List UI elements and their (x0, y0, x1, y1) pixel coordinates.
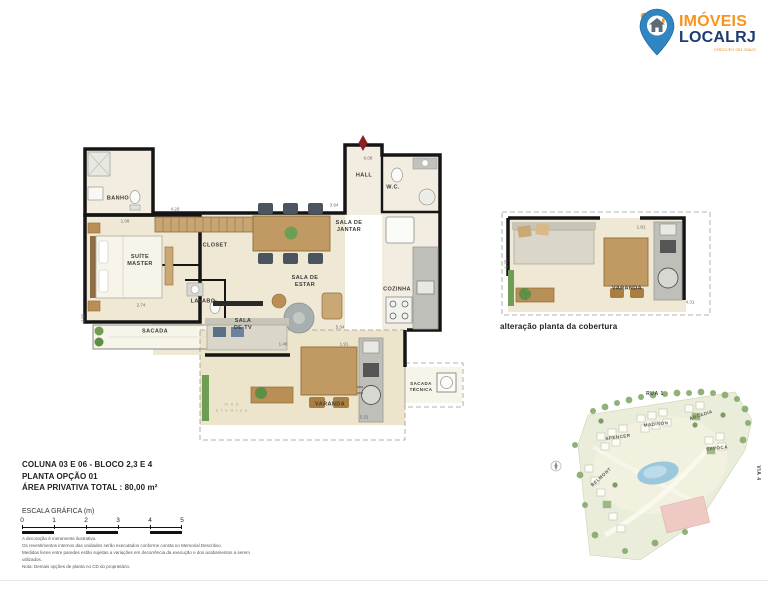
cobertura-drawing (500, 210, 712, 318)
room-label-sala-estar: SALA DEESTAR (292, 275, 319, 289)
disclaimer-line: A decoração é meramente ilustrativa. (22, 536, 262, 543)
scale-tick: 1 (52, 517, 56, 524)
info-coluna: COLUNA 03 E 06 - BLOCO 2,3 E 4 (22, 459, 252, 471)
scale-label: ESCALA GRÁFICA (m) (22, 508, 252, 515)
road-label-rua1: RUA 1 (646, 391, 664, 397)
room-label-banho: BANHO (107, 195, 129, 202)
room-label-suite-master: SUÍTEMASTER (127, 254, 153, 268)
studio-watermark: m h bs t u d i o s (518, 287, 550, 298)
dim-label: 1.08 (121, 219, 130, 224)
site-map-drawing (545, 385, 768, 585)
room-label-wc: W.C. (386, 184, 400, 191)
scale-tick: 2 (84, 517, 88, 524)
brand-line2: LOCALRJ (679, 30, 756, 46)
dim-label: 1.91 (340, 342, 349, 347)
room-label-lavabo: LAVABO (191, 298, 216, 305)
main-floorplan: BANHO SUÍTEMASTER CLOSET LAVABO SACADA S… (75, 135, 465, 445)
room-label-closet: CLOSET (203, 242, 228, 249)
brand-line1: IMÓVEIS (679, 14, 756, 30)
dim-label: 6.08 (364, 156, 373, 161)
brand-logo: IMÓVEIS LOCALRJ CRECI/RJ 051.306/O (638, 8, 764, 66)
disclaimer-line: Nota: Demais opções de planta no CD do p… (22, 564, 262, 571)
dim-label: 5.31 (360, 415, 369, 420)
cobertura-caption: alteração planta da cobertura (500, 322, 617, 331)
info-planta: PLANTA OPÇÃO 01 (22, 471, 252, 483)
disclaimer-line: Medidas livres entre paredes estão sujei… (22, 550, 262, 564)
dim-label: 4.29 (171, 207, 180, 212)
info-area: ÁREA PRIVATIVA TOTAL : 80,00 m² (22, 482, 252, 494)
brand-name: IMÓVEIS LOCALRJ CRECI/RJ 051.306/O (679, 8, 756, 52)
dim-label: 2.74 (137, 303, 146, 308)
dim-label: 3.94 (330, 203, 339, 208)
dim-label: 1.76 (504, 260, 509, 269)
room-label-varanda: VARANDA (315, 401, 345, 408)
room-label-sala-jantar: SALA DEJANTAR (336, 220, 363, 234)
scale-tick: 0 (20, 517, 24, 524)
dim-label: 4.31 (686, 300, 695, 305)
dim-label: 2.66 (81, 314, 86, 323)
road-label-via4: VIA 4 (755, 465, 761, 480)
room-label-varanda-cobertura: VARANDA (612, 285, 642, 292)
scale-tick: 4 (148, 517, 152, 524)
room-label-hall: HALL (356, 172, 372, 179)
room-label-sala-tv: SALADE TV (234, 318, 252, 332)
dim-label: 1.81 (637, 225, 646, 230)
scale-tick: 5 (180, 517, 184, 524)
room-label-sacada: SACADA (142, 328, 168, 335)
site-map: RUA 1 VIA 4 SPENCER MADISON ARCADIA SAVO… (545, 385, 768, 585)
compass-icon (551, 461, 561, 471)
dim-label: 1.48 (279, 342, 288, 347)
room-label-cozinha: COZINHA (383, 286, 411, 293)
brand-creci: CRECI/RJ 051.306/O (679, 48, 756, 52)
dim-label: 5.34 (336, 325, 345, 330)
cobertura-plan: VARANDA m h bs t u d i o s 1.76 1.81 4.3… (500, 210, 712, 342)
plan-info-block: COLUNA 03 E 06 - BLOCO 2,3 E 4 PLANTA OP… (22, 459, 252, 538)
floorplan-sheet: IMÓVEIS LOCALRJ CRECI/RJ 051.306/O (0, 0, 768, 600)
studio-watermark: m h bs t u d i o s (216, 401, 248, 412)
disclaimer-block: A decoração é meramente ilustrativa. Os … (22, 536, 262, 571)
disclaimer-line: Os revestimentos internos das unidades s… (22, 543, 262, 550)
scale-tick: 3 (116, 517, 120, 524)
room-label-sacada-tecnica: SACADATÉCNICA (410, 381, 433, 393)
map-pin-icon (638, 8, 676, 58)
